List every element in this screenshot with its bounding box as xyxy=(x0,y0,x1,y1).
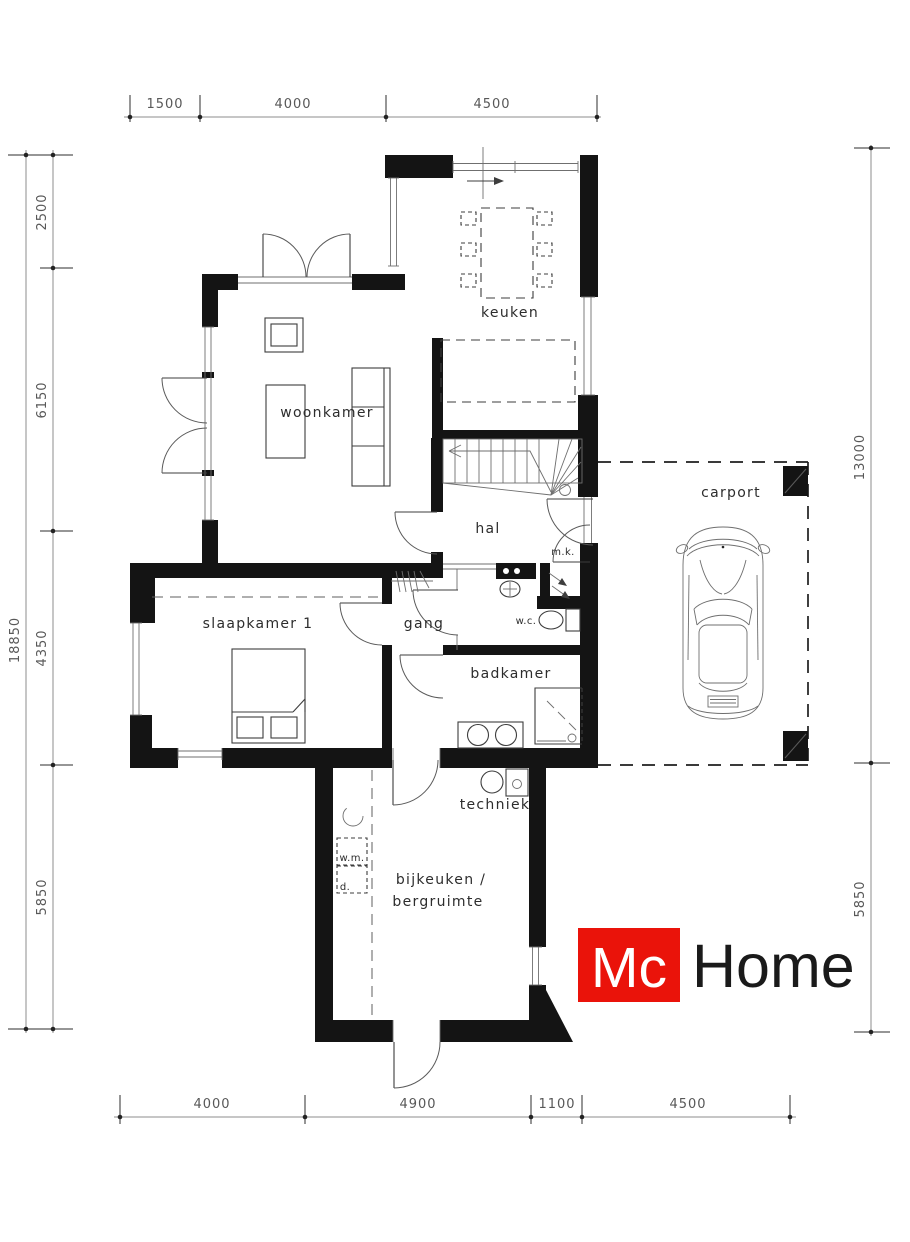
dim-left-6150: 6150 xyxy=(35,381,50,418)
dim-right-13000: 13000 xyxy=(853,434,868,480)
room-label-slaapkamer: slaapkamer 1 xyxy=(203,616,314,632)
entrance-arrow xyxy=(467,147,504,199)
room-label-carport: carport xyxy=(701,485,761,501)
room-label-bijkeuken-1: bijkeuken / xyxy=(396,872,486,888)
dim-left-5850: 5850 xyxy=(35,878,50,915)
room-label-keuken: keuken xyxy=(481,305,539,321)
dim-left-2500: 2500 xyxy=(35,193,50,230)
kitchen-counter-dashed xyxy=(441,340,575,402)
room-label-d: d. xyxy=(340,882,350,893)
floor-plan-drawing: 1500 4000 4500 2500 6150 4350 5850 18850… xyxy=(0,0,910,1242)
room-label-woonkamer: woonkamer xyxy=(280,405,374,421)
bathroom-fixtures xyxy=(458,688,582,748)
doors xyxy=(162,234,593,1088)
meter-cupboard-symbols xyxy=(549,573,570,599)
dim-bottom-4500: 4500 xyxy=(669,1097,706,1112)
dim-left-4350: 4350 xyxy=(35,629,50,666)
room-label-badkamer: badkamer xyxy=(470,666,551,682)
room-label-hal: hal xyxy=(475,521,500,537)
logo-home-text: Home xyxy=(692,932,855,1000)
dim-bottom-1100: 1100 xyxy=(538,1097,575,1112)
dim-top-4500: 4500 xyxy=(473,97,510,112)
car-top-view xyxy=(675,527,771,719)
dim-bottom-4900: 4900 xyxy=(399,1097,436,1112)
staircase xyxy=(443,439,582,496)
mchome-logo: Mc Home xyxy=(578,928,855,1002)
room-label-mk: m.k. xyxy=(551,547,575,558)
livingroom-furniture xyxy=(265,318,390,486)
walls xyxy=(130,155,598,1042)
dim-right-5850: 5850 xyxy=(853,880,868,917)
kitchen-table xyxy=(461,208,552,298)
techniek-equipment xyxy=(481,769,528,796)
room-label-wc: w.c. xyxy=(516,616,537,627)
utility-room xyxy=(337,770,372,1018)
dim-top-4000: 4000 xyxy=(274,97,311,112)
floor-plan-page: 1500 4000 4500 2500 6150 4350 5850 18850… xyxy=(0,0,910,1242)
windows xyxy=(130,161,595,1042)
room-label-techniek: techniek xyxy=(460,797,531,813)
room-label-bijkeuken-2: bergruimte xyxy=(392,894,483,910)
dim-top-1500: 1500 xyxy=(146,97,183,112)
logo-mc-text: Mc xyxy=(591,936,667,1000)
room-label-wm: w.m. xyxy=(340,853,365,864)
dim-bottom-4000: 4000 xyxy=(193,1097,230,1112)
carport-area xyxy=(598,462,808,765)
room-label-gang: gang xyxy=(404,616,444,632)
dim-left-total-18850: 18850 xyxy=(8,617,23,663)
